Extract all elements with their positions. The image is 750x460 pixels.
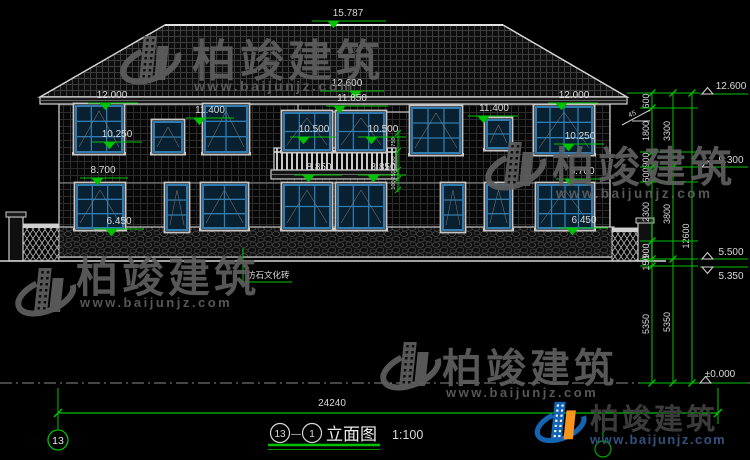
watermark-text: www.baijunjz.com (79, 295, 232, 310)
elevation-label: 8.850 (306, 162, 331, 173)
dim-label: 5.350 (718, 271, 743, 282)
dim-label: 24240 (318, 398, 346, 409)
watermark-text: www.baijunjz.com (589, 432, 726, 447)
title-name: 立面图 (326, 425, 377, 444)
dim-label: 13 (52, 435, 64, 447)
left-fence (6, 212, 59, 261)
gray-watermark: 柏竣建筑www.baijunjz.com (13, 254, 260, 321)
brand-logo: 柏竣建筑www.baijunjz.com (533, 402, 726, 447)
window (280, 183, 334, 232)
elevation-label: 11.400 (195, 105, 225, 116)
dim-label: — (291, 429, 301, 440)
dim-label: ±0.000 (705, 369, 736, 380)
cad-elevation-screenshot: 15.78712.60011.85012.00011.40010.2508.70… (0, 0, 750, 460)
elevation-label: 15.787 (333, 8, 364, 19)
brand-glyph-icon (533, 402, 588, 447)
dim-label: 3300 (662, 121, 672, 141)
dim-label: 13 (274, 429, 286, 440)
brand-glyph-icon (378, 342, 443, 395)
dim-label: 1 (309, 429, 315, 440)
elevation-label: 12.000 (97, 90, 128, 101)
elevation-label: 10.500 (368, 124, 399, 135)
watermark-text: 柏竣建筑 (552, 144, 736, 191)
fence-pillar (9, 217, 23, 261)
elevation-triangle-icon (702, 88, 713, 95)
dim-label: 5350 (662, 312, 672, 332)
dim-label: 1800 (641, 121, 651, 141)
watermark-text: 柏竣建筑 (590, 402, 718, 436)
elevation-triangle-icon (702, 253, 713, 260)
dim-label: 100 (391, 180, 397, 189)
window (408, 106, 464, 157)
window (334, 183, 388, 232)
elevation-label: 10.250 (102, 129, 133, 140)
watermark-text: www.baijunjz.com (193, 78, 355, 94)
elevation-drawing: 15.78712.60011.85012.00011.40010.2508.70… (0, 0, 750, 460)
elevation-label: 10.500 (299, 124, 330, 135)
dim-label: 600 (641, 93, 651, 108)
title-scale: 1:100 (392, 428, 423, 442)
dim-label: 12600 (681, 223, 691, 248)
dim-label: 12.600 (716, 81, 747, 92)
elevation-label: 11.400 (479, 103, 509, 114)
pillar-cap (6, 212, 26, 217)
brand-glyph-icon (13, 268, 78, 321)
dim-label: 5350 (641, 314, 651, 334)
window (199, 183, 250, 232)
door (441, 183, 466, 233)
dim-label: 150 (641, 255, 651, 270)
window (150, 120, 186, 156)
elevation-label: 11.850 (337, 93, 367, 104)
elevation-label: 12.000 (559, 90, 590, 101)
watermark-text: www.baijunjz.com (555, 186, 713, 201)
watermark-text: 柏竣建筑 (76, 254, 260, 301)
elevation-triangle-icon (702, 267, 713, 274)
gray-watermark: 柏竣建筑www.baijunjz.com (378, 342, 618, 400)
elevation-label: 10.250 (565, 131, 596, 142)
watermark-text: www.baijunjz.com (445, 385, 598, 400)
dim-label: 2300 (641, 202, 651, 222)
dim-label: 750 (391, 137, 397, 146)
dim-label: 900 (391, 156, 397, 165)
elevation-label: 6.450 (106, 216, 131, 227)
dim-label: 3800 (662, 204, 672, 224)
elevation-label: 8.700 (90, 165, 115, 176)
elevation-label: 6.450 (571, 215, 596, 226)
door (165, 183, 190, 233)
dim-label: 250 (391, 170, 397, 179)
dim-label: 5.500 (718, 247, 743, 258)
